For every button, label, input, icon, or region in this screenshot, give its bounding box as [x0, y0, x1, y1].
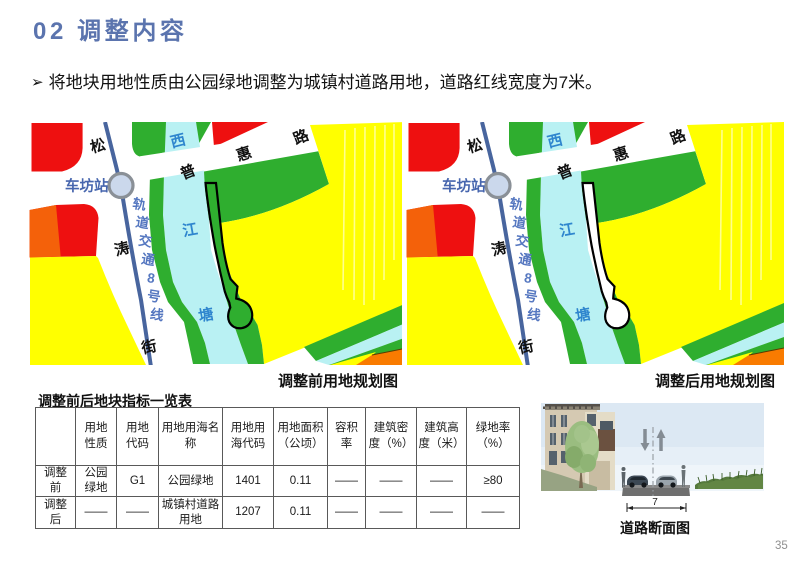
svg-text:松: 松 [88, 135, 107, 156]
svg-text:塘: 塘 [197, 305, 215, 325]
svg-text:8: 8 [523, 270, 533, 286]
svg-text:线: 线 [526, 305, 542, 323]
svg-text:8: 8 [146, 270, 156, 286]
svg-text:轨: 轨 [509, 195, 525, 213]
svg-text:松: 松 [465, 135, 484, 156]
svg-text:道: 道 [134, 213, 150, 231]
svg-text:轨: 轨 [132, 195, 148, 213]
svg-text:车坊站: 车坊站 [442, 177, 486, 195]
svg-text:交: 交 [137, 232, 153, 250]
svg-text:交: 交 [514, 232, 530, 250]
svg-text:江: 江 [558, 220, 576, 240]
svg-text:通: 通 [140, 251, 156, 268]
svg-text:7: 7 [652, 497, 658, 508]
svg-text:街: 街 [516, 337, 535, 358]
svg-text:道: 道 [511, 213, 527, 231]
svg-text:线: 线 [149, 305, 165, 323]
svg-text:通: 通 [517, 251, 533, 268]
svg-text:街: 街 [139, 337, 158, 358]
svg-text:塘: 塘 [574, 305, 592, 325]
svg-text:号: 号 [146, 288, 162, 305]
svg-text:车坊站: 车坊站 [65, 177, 109, 195]
svg-text:江: 江 [181, 220, 199, 240]
svg-text:号: 号 [523, 288, 539, 305]
